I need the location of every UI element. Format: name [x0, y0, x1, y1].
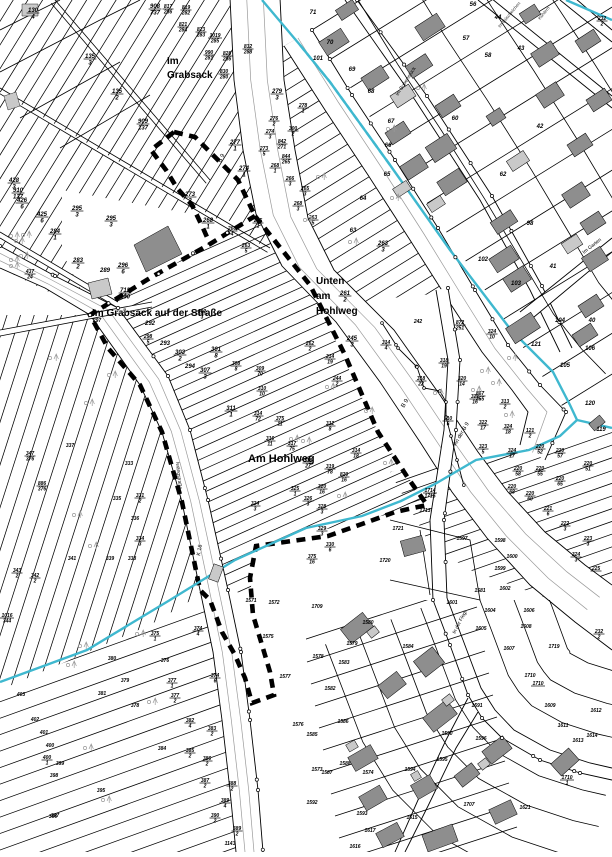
svg-text:378: 378	[131, 703, 140, 709]
svg-text:737: 737	[150, 11, 161, 17]
svg-text:121: 121	[531, 342, 542, 348]
svg-text:52: 52	[537, 450, 543, 456]
svg-text:2: 2	[205, 762, 209, 768]
svg-text:120: 120	[585, 401, 596, 407]
svg-text:255: 255	[475, 397, 485, 403]
svg-text:42: 42	[536, 124, 544, 130]
svg-text:2: 2	[308, 347, 312, 353]
svg-text:67: 67	[388, 119, 395, 125]
svg-text:2: 2	[33, 579, 37, 585]
svg-text:1574: 1574	[362, 770, 373, 776]
svg-text:2: 2	[187, 199, 192, 205]
svg-text:22: 22	[417, 382, 424, 388]
svg-text:335: 335	[113, 496, 122, 502]
svg-text:1613: 1613	[572, 738, 583, 744]
svg-text:19: 19	[327, 360, 333, 366]
svg-text:1: 1	[274, 169, 277, 175]
svg-text:1571: 1571	[245, 598, 256, 604]
svg-text:5: 5	[263, 152, 266, 158]
svg-text:1609: 1609	[544, 703, 555, 709]
svg-text:288: 288	[243, 50, 253, 56]
svg-text:27: 27	[304, 464, 311, 470]
svg-text:57: 57	[557, 454, 563, 460]
svg-text:40: 40	[588, 318, 596, 324]
svg-text:280: 280	[219, 75, 229, 81]
svg-text:289: 289	[99, 268, 111, 274]
svg-text:2: 2	[210, 732, 214, 738]
svg-text:1604: 1604	[484, 608, 495, 614]
svg-text:1608: 1608	[520, 624, 531, 630]
svg-text:2: 2	[173, 699, 177, 705]
svg-text:103: 103	[511, 281, 522, 287]
svg-text:5: 5	[147, 340, 150, 346]
svg-text:2: 2	[597, 635, 601, 641]
svg-text:271: 271	[277, 145, 287, 151]
svg-text:400: 400	[45, 743, 55, 749]
svg-text:2: 2	[235, 832, 239, 838]
svg-text:68: 68	[368, 89, 375, 95]
svg-text:1581: 1581	[474, 588, 485, 594]
svg-text:290: 290	[119, 295, 131, 301]
svg-text:56: 56	[470, 2, 477, 8]
svg-text:44: 44	[494, 15, 502, 21]
svg-text:75: 75	[289, 447, 295, 453]
svg-text:11: 11	[267, 442, 272, 448]
svg-text:3: 3	[587, 542, 590, 548]
svg-text:58: 58	[515, 472, 521, 478]
svg-text:104: 104	[555, 318, 566, 324]
svg-text:106: 106	[585, 346, 596, 352]
svg-text:1583: 1583	[338, 660, 349, 666]
svg-text:1595: 1595	[436, 757, 447, 763]
svg-text:1: 1	[566, 781, 569, 787]
svg-text:10: 10	[259, 392, 265, 398]
svg-text:1721: 1721	[392, 526, 403, 532]
svg-text:17: 17	[480, 426, 486, 432]
svg-text:1593: 1593	[356, 811, 367, 817]
svg-text:1591: 1591	[471, 703, 482, 709]
svg-text:376: 376	[38, 487, 47, 493]
svg-text:6: 6	[547, 512, 550, 518]
svg-text:3: 3	[307, 502, 310, 508]
svg-text:2: 2	[203, 784, 207, 790]
svg-text:1: 1	[257, 224, 260, 230]
svg-text:1582: 1582	[324, 686, 335, 692]
svg-text:1602: 1602	[499, 586, 510, 592]
svg-text:338: 338	[128, 556, 137, 562]
svg-text:2: 2	[600, 22, 604, 28]
svg-text:6: 6	[447, 422, 450, 428]
svg-text:1578: 1578	[312, 654, 323, 660]
svg-text:282: 282	[181, 11, 191, 17]
svg-text:1592: 1592	[306, 800, 317, 806]
svg-text:6: 6	[329, 548, 332, 554]
svg-text:3: 3	[139, 542, 142, 548]
svg-text:1586: 1586	[337, 719, 348, 725]
svg-text:2: 2	[528, 434, 532, 440]
svg-text:286: 286	[163, 10, 173, 16]
svg-text:18: 18	[505, 430, 511, 436]
svg-text:1597: 1597	[456, 536, 467, 542]
svg-text:1585: 1585	[306, 732, 317, 738]
svg-text:380: 380	[108, 656, 117, 662]
svg-text:2: 2	[213, 819, 217, 825]
svg-text:1713: 1713	[419, 508, 430, 514]
svg-text:72: 72	[255, 417, 261, 423]
svg-text:1573: 1573	[311, 767, 322, 773]
svg-text:399: 399	[56, 761, 65, 767]
svg-text:1719: 1719	[548, 644, 559, 650]
svg-text:4: 4	[223, 804, 227, 810]
svg-text:3: 3	[575, 558, 578, 564]
svg-text:Im: Im	[167, 56, 179, 67]
svg-text:11: 11	[277, 422, 282, 428]
svg-text:1594: 1594	[404, 767, 415, 773]
svg-text:2: 2	[503, 405, 507, 411]
svg-text:5: 5	[245, 249, 248, 255]
svg-text:14: 14	[459, 382, 465, 388]
svg-text:41: 41	[549, 264, 557, 270]
svg-text:2: 2	[75, 265, 80, 271]
svg-text:1579: 1579	[346, 641, 357, 647]
svg-text:am: am	[316, 291, 331, 302]
svg-text:1572: 1572	[268, 600, 279, 606]
svg-text:51: 51	[585, 467, 591, 473]
svg-text:403: 403	[16, 692, 26, 698]
svg-text:379: 379	[121, 678, 130, 684]
svg-text:3: 3	[297, 207, 300, 213]
svg-text:3: 3	[254, 507, 257, 513]
svg-text:1584: 1584	[402, 644, 413, 650]
svg-text:4: 4	[230, 232, 234, 238]
svg-text:2: 2	[291, 132, 295, 138]
svg-text:294: 294	[184, 364, 196, 370]
svg-text:396: 396	[49, 814, 58, 820]
svg-text:63: 63	[350, 228, 357, 234]
svg-text:1614: 1614	[586, 733, 597, 739]
svg-text:1606: 1606	[523, 608, 534, 614]
svg-text:70: 70	[257, 372, 263, 378]
svg-text:3: 3	[304, 192, 307, 198]
svg-text:65: 65	[557, 482, 563, 488]
svg-text:57: 57	[463, 36, 470, 42]
svg-text:2: 2	[15, 574, 19, 580]
svg-text:78: 78	[327, 470, 333, 476]
svg-text:1580: 1580	[362, 620, 373, 626]
svg-text:8: 8	[329, 427, 332, 433]
svg-text:2: 2	[272, 122, 276, 128]
svg-text:62: 62	[500, 172, 507, 178]
svg-text:1611: 1611	[558, 723, 569, 729]
svg-text:384: 384	[158, 746, 167, 752]
svg-text:19: 19	[441, 364, 447, 370]
svg-text:105: 105	[560, 363, 571, 369]
svg-text:18: 18	[353, 454, 359, 460]
svg-text:333: 333	[125, 461, 134, 467]
svg-text:297: 297	[92, 318, 102, 324]
svg-text:1599: 1599	[494, 566, 505, 572]
svg-text:376: 376	[161, 658, 170, 664]
svg-text:336: 336	[131, 516, 140, 522]
svg-text:70: 70	[327, 40, 334, 46]
svg-text:2: 2	[177, 357, 182, 363]
svg-text:5: 5	[312, 221, 315, 227]
svg-text:281: 281	[204, 56, 214, 62]
svg-text:2: 2	[342, 298, 347, 304]
svg-text:3: 3	[564, 527, 567, 533]
svg-text:3: 3	[321, 510, 324, 516]
svg-text:251: 251	[455, 326, 465, 332]
svg-text:101: 101	[313, 56, 324, 62]
svg-text:284: 284	[178, 28, 188, 34]
svg-text:1590: 1590	[441, 731, 452, 737]
svg-text:1: 1	[46, 761, 49, 767]
svg-text:242: 242	[413, 319, 423, 325]
svg-text:1621: 1621	[519, 805, 530, 811]
svg-text:5: 5	[482, 450, 485, 456]
svg-text:16: 16	[309, 560, 315, 566]
svg-text:119: 119	[596, 427, 606, 433]
svg-text:1: 1	[294, 492, 297, 498]
svg-text:16: 16	[341, 478, 347, 484]
svg-text:1710: 1710	[524, 673, 535, 679]
svg-text:337: 337	[66, 443, 75, 449]
svg-text:4: 4	[30, 15, 35, 21]
svg-text:2: 2	[230, 787, 234, 793]
svg-text:1617: 1617	[364, 828, 375, 834]
svg-text:17: 17	[509, 454, 515, 460]
svg-text:1576: 1576	[292, 722, 303, 728]
svg-text:98: 98	[527, 221, 534, 227]
svg-text:1601: 1601	[446, 600, 457, 606]
svg-text:3: 3	[201, 315, 204, 321]
svg-text:402: 402	[30, 717, 40, 723]
svg-text:1: 1	[302, 109, 305, 115]
svg-text:1600: 1600	[506, 554, 517, 560]
svg-text:344: 344	[3, 619, 12, 625]
svg-text:1577: 1577	[279, 674, 290, 680]
svg-text:Unten: Unten	[316, 276, 344, 287]
svg-text:401: 401	[39, 730, 49, 736]
svg-text:3: 3	[321, 532, 324, 538]
svg-text:4: 4	[196, 632, 200, 638]
svg-text:398: 398	[50, 773, 59, 779]
svg-text:1143: 1143	[225, 841, 236, 847]
svg-text:1709: 1709	[311, 604, 322, 610]
svg-text:1607: 1607	[503, 646, 514, 652]
svg-text:43: 43	[517, 46, 525, 52]
svg-text:286: 286	[222, 57, 232, 63]
svg-text:3: 3	[289, 182, 292, 188]
svg-text:376: 376	[26, 457, 35, 463]
svg-text:65: 65	[384, 172, 391, 178]
svg-text:4: 4	[188, 724, 192, 730]
svg-text:1605: 1605	[475, 626, 486, 632]
svg-text:292: 292	[144, 321, 156, 327]
svg-text:137: 137	[138, 126, 149, 132]
svg-text:10: 10	[489, 335, 495, 341]
svg-text:68: 68	[509, 490, 515, 496]
svg-text:283: 283	[196, 33, 206, 39]
svg-text:341: 341	[68, 556, 77, 562]
svg-text:1588: 1588	[339, 761, 350, 767]
svg-text:381: 381	[98, 691, 107, 697]
svg-text:265: 265	[281, 160, 291, 166]
svg-text:1598: 1598	[494, 538, 505, 544]
svg-text:60: 60	[527, 497, 533, 503]
svg-text:8: 8	[235, 367, 238, 373]
svg-text:24: 24	[26, 275, 33, 281]
svg-text:2: 2	[114, 96, 119, 102]
svg-text:69: 69	[349, 67, 356, 73]
svg-text:60: 60	[452, 116, 459, 122]
svg-text:Grabsack: Grabsack	[167, 70, 213, 81]
svg-text:1596: 1596	[475, 736, 486, 742]
svg-text:1575: 1575	[262, 634, 273, 640]
svg-text:55: 55	[537, 472, 543, 478]
svg-text:64: 64	[360, 196, 367, 202]
svg-text:1587: 1587	[321, 770, 332, 776]
svg-text:102: 102	[478, 257, 489, 263]
svg-text:2: 2	[188, 754, 192, 760]
svg-text:1: 1	[154, 637, 157, 643]
svg-text:1707: 1707	[463, 802, 474, 808]
svg-text:16: 16	[319, 490, 325, 496]
svg-text:Hohlweg: Hohlweg	[316, 306, 358, 317]
svg-text:1715: 1715	[424, 494, 435, 500]
svg-text:285: 285	[210, 39, 220, 45]
svg-text:3: 3	[269, 135, 272, 141]
svg-text:71: 71	[310, 10, 317, 16]
svg-text:1616: 1616	[349, 844, 360, 850]
svg-text:1720: 1720	[379, 558, 390, 564]
svg-text:339: 339	[106, 556, 115, 562]
svg-text:2: 2	[335, 382, 339, 388]
svg-text:1615: 1615	[406, 815, 417, 821]
svg-text:1612: 1612	[590, 708, 601, 714]
svg-text:58: 58	[485, 53, 492, 59]
svg-text:6: 6	[214, 679, 217, 685]
svg-text:1: 1	[171, 684, 174, 690]
svg-text:293: 293	[159, 341, 171, 347]
svg-text:66: 66	[385, 143, 392, 149]
svg-text:395: 395	[97, 788, 106, 794]
svg-text:2: 2	[138, 499, 142, 505]
svg-text:4: 4	[384, 346, 388, 352]
